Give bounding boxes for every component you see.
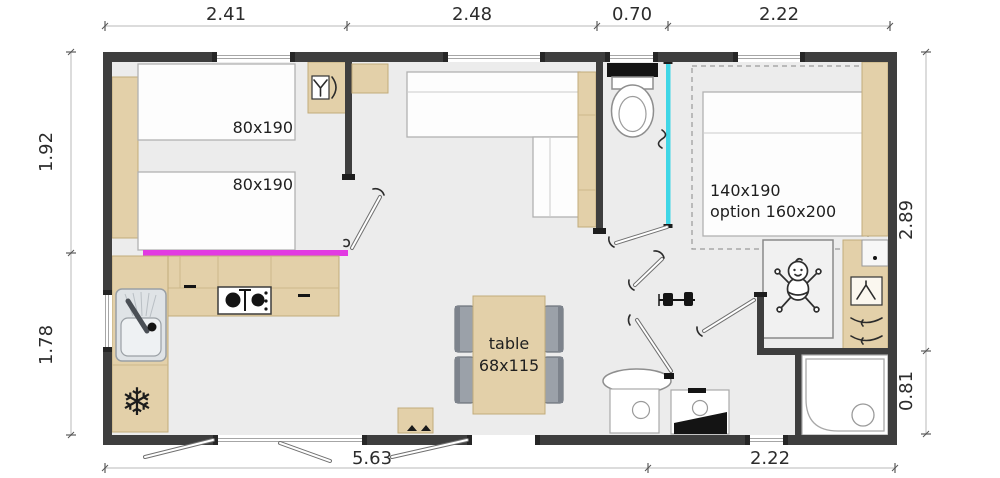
top-wall-4 xyxy=(658,52,733,62)
dim-top-2: 2.48 xyxy=(452,4,492,25)
dim-right-2-group: 0.81 xyxy=(896,371,917,411)
double-bed-label: 140x190 xyxy=(710,181,781,200)
french-door-bay xyxy=(213,435,367,445)
bedroom-partition-wall xyxy=(345,56,352,178)
top-wall-5 xyxy=(805,52,897,62)
dining-table xyxy=(473,296,545,414)
chair-back4 xyxy=(558,357,563,403)
chair-back2 xyxy=(455,357,460,403)
dim-right-1: 2.89 xyxy=(896,200,917,240)
hob-knob3 xyxy=(264,307,267,310)
bottom-wall-4 xyxy=(788,435,897,445)
washbasin-knob xyxy=(633,402,650,419)
fridge-snowflake-icon: ❄ xyxy=(121,380,153,424)
chair-back1 xyxy=(455,306,460,352)
sofa-horizontal xyxy=(407,72,580,137)
left-wall-lower xyxy=(103,352,112,445)
top-wall-1 xyxy=(103,52,212,62)
floor-plan-drawing: 80x190 80x190 xyxy=(0,0,1000,478)
dim-left-2: 1.78 xyxy=(36,325,57,365)
shower-side-wall xyxy=(795,352,802,435)
dim-bottom-2: 2.22 xyxy=(750,448,790,469)
hob-knob2 xyxy=(264,299,267,302)
window-wc xyxy=(605,52,658,62)
top-wall-2 xyxy=(295,52,443,62)
wc-wall-cap xyxy=(593,228,606,234)
dim-right-2: 0.81 xyxy=(896,371,917,411)
dim-left-2-group: 1.78 xyxy=(36,325,57,365)
shower-drain xyxy=(852,404,874,426)
side-wardrobe-nook xyxy=(862,240,888,266)
vanity-knob xyxy=(693,401,708,416)
hob-knob1 xyxy=(264,291,267,294)
sliding-door xyxy=(666,62,671,227)
nook-knob xyxy=(873,256,877,260)
single-bed-2-label: 80x190 xyxy=(233,175,293,194)
sink-drain xyxy=(148,323,157,332)
bathroom-wall-cap xyxy=(754,292,767,297)
window-kids-bedroom xyxy=(212,52,295,62)
master-wardrobe-strip xyxy=(862,62,888,236)
left-wall-upper xyxy=(103,52,112,290)
window-living xyxy=(443,52,545,62)
side-cabinet xyxy=(352,64,388,93)
dim-top-4: 2.22 xyxy=(759,4,799,25)
table-label: table xyxy=(489,334,530,353)
bathroom-top-wall xyxy=(757,348,897,355)
table-size-label: 68x115 xyxy=(479,356,539,375)
top-wall-3 xyxy=(545,52,605,62)
drawer-handle1 xyxy=(184,285,196,288)
floor-plan-page: 80x190 80x190 xyxy=(0,0,1000,478)
dim-bottom-1: 5.63 xyxy=(352,448,392,469)
window-kitchen xyxy=(103,290,112,352)
tall-cabinet xyxy=(578,72,596,227)
dim-right-1-group: 2.89 xyxy=(896,200,917,240)
sofa-vertical xyxy=(533,137,580,217)
dim-top-3: 0.70 xyxy=(612,4,652,25)
window-master xyxy=(733,52,805,62)
single-bed-1-label: 80x190 xyxy=(233,118,293,137)
toilet-bowl xyxy=(612,85,654,137)
toilet-cistern xyxy=(607,63,658,77)
dim-top-1: 2.41 xyxy=(206,4,246,25)
entrance-opening xyxy=(467,435,540,445)
wall-end-cap xyxy=(342,174,355,180)
burner-1 xyxy=(226,293,241,308)
window-bathroom xyxy=(745,435,788,445)
dim-left-1: 1.92 xyxy=(36,132,57,172)
double-bed-option-label: option 160x200 xyxy=(710,202,836,221)
washbasin-faucet xyxy=(664,373,674,379)
bathroom-wall-stub xyxy=(757,295,764,352)
burner-2 xyxy=(252,294,265,307)
headboard-shelf xyxy=(112,77,138,238)
chair-back3 xyxy=(558,306,563,352)
dim-left-1-group: 1.92 xyxy=(36,132,57,172)
bottom-wall-3 xyxy=(540,435,745,445)
counter-highlight-bar xyxy=(143,250,348,256)
vanity-faucet xyxy=(688,388,706,393)
drawer-handle2 xyxy=(298,294,310,297)
wc-wall xyxy=(596,56,603,232)
